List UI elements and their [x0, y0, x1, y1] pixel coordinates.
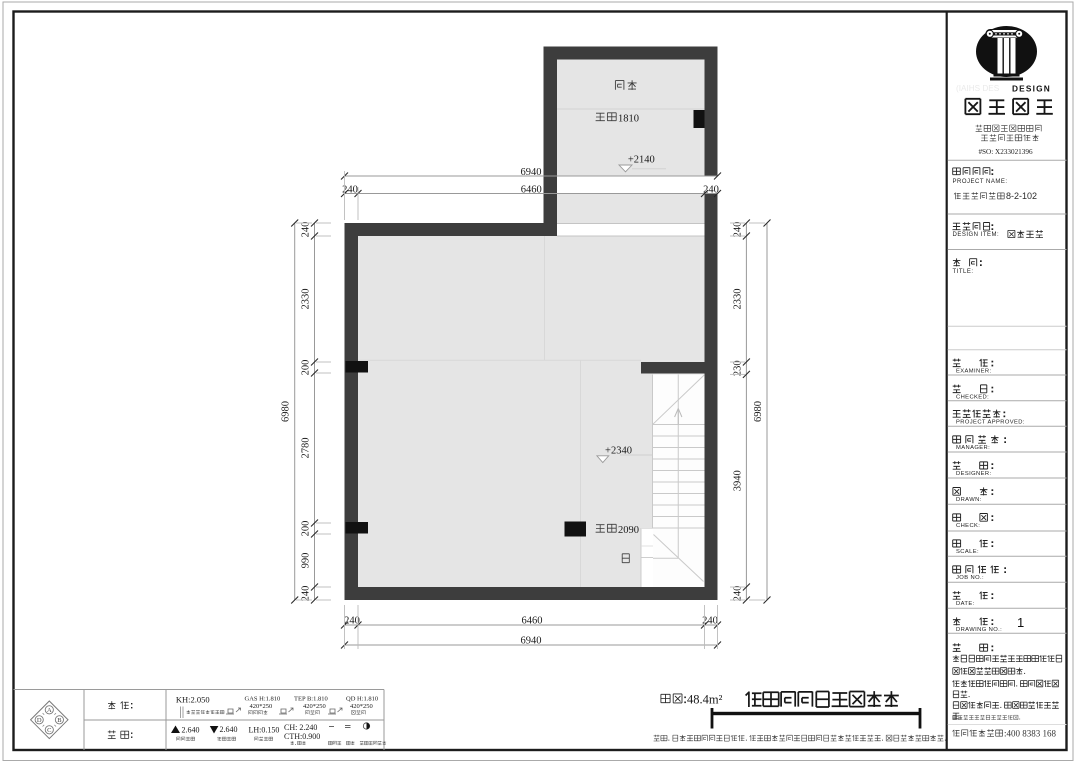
svg-text:DESIGN ITEM:: DESIGN ITEM:	[953, 232, 1000, 238]
svg-text:240: 240	[301, 222, 312, 238]
svg-text:2090: 2090	[618, 525, 639, 536]
svg-text:240: 240	[733, 222, 744, 238]
svg-text:8-2-102: 8-2-102	[1006, 191, 1037, 201]
svg-text:240: 240	[344, 616, 360, 627]
svg-text:200: 200	[301, 521, 312, 537]
svg-text:TEP B:1.810: TEP B:1.810	[294, 696, 328, 703]
svg-text:6980: 6980	[753, 401, 764, 422]
svg-text:6460: 6460	[522, 616, 543, 627]
svg-text:QD H:1.810: QD H:1.810	[346, 696, 378, 703]
svg-text:CHECKED:: CHECKED:	[956, 395, 989, 401]
svg-text:PROJECT NAME:: PROJECT NAME:	[953, 179, 1008, 185]
svg-text:2.640: 2.640	[220, 725, 238, 734]
svg-text:6460: 6460	[521, 184, 542, 195]
svg-text:DESIGN: DESIGN	[1012, 84, 1051, 94]
svg-text:200: 200	[301, 360, 312, 376]
svg-text:240: 240	[733, 586, 744, 602]
svg-text:+2140: +2140	[628, 155, 655, 166]
svg-text:1810: 1810	[618, 114, 639, 125]
svg-text:(IAIHS DES: (IAIHS DES	[956, 84, 1000, 93]
svg-text::400 8383 168: :400 8383 168	[1004, 729, 1057, 739]
svg-text:JOB NO.:: JOB NO.:	[956, 575, 984, 581]
svg-text:48.4m²: 48.4m²	[687, 693, 723, 707]
svg-text:DRAWING NO.:: DRAWING NO.:	[956, 627, 1002, 633]
svg-text:420*250: 420*250	[250, 703, 273, 710]
svg-text:CTH:0.900: CTH:0.900	[284, 732, 320, 741]
svg-text:TITLE:: TITLE:	[953, 269, 974, 275]
svg-text:SCALE:: SCALE:	[956, 549, 979, 555]
svg-text:6980: 6980	[281, 401, 292, 422]
svg-text:230: 230	[733, 360, 744, 376]
svg-text:CH: 2.240: CH: 2.240	[284, 723, 317, 732]
svg-text:2330: 2330	[301, 289, 312, 310]
svg-text:2780: 2780	[301, 438, 312, 459]
svg-text:B: B	[57, 717, 62, 724]
svg-text:DATE:: DATE:	[956, 601, 975, 607]
svg-text:DRAWN:: DRAWN:	[956, 497, 982, 503]
svg-text:A: A	[47, 707, 52, 714]
svg-text:3940: 3940	[733, 470, 744, 491]
svg-text:DESIGNER:: DESIGNER:	[956, 471, 992, 477]
svg-text:240: 240	[301, 586, 312, 602]
svg-text:2330: 2330	[733, 289, 744, 310]
svg-text:990: 990	[301, 553, 312, 569]
svg-text:PROJECT APPROVED:: PROJECT APPROVED:	[956, 419, 1025, 425]
svg-text:6940: 6940	[521, 636, 542, 647]
svg-text:6940: 6940	[521, 167, 542, 178]
svg-text:LH:0.150: LH:0.150	[249, 726, 280, 735]
svg-text:C: C	[47, 727, 51, 734]
svg-text:2.640: 2.640	[182, 726, 200, 735]
svg-text:D: D	[37, 717, 42, 724]
svg-text:+2340: +2340	[605, 446, 632, 457]
svg-text:CHECK:: CHECK:	[956, 523, 980, 529]
svg-text:KH:2.050: KH:2.050	[176, 695, 210, 705]
svg-text:MANAGER:: MANAGER:	[956, 445, 990, 451]
svg-text:1: 1	[1017, 615, 1024, 630]
svg-text:240: 240	[703, 184, 719, 195]
svg-text:#SO: X233021396: #SO: X233021396	[978, 148, 1033, 156]
svg-text:GAS H:1.810: GAS H:1.810	[245, 696, 281, 703]
svg-text:EXAMINER:: EXAMINER:	[956, 369, 992, 375]
svg-text:420*250: 420*250	[350, 703, 373, 710]
svg-text:420*250: 420*250	[303, 703, 326, 710]
